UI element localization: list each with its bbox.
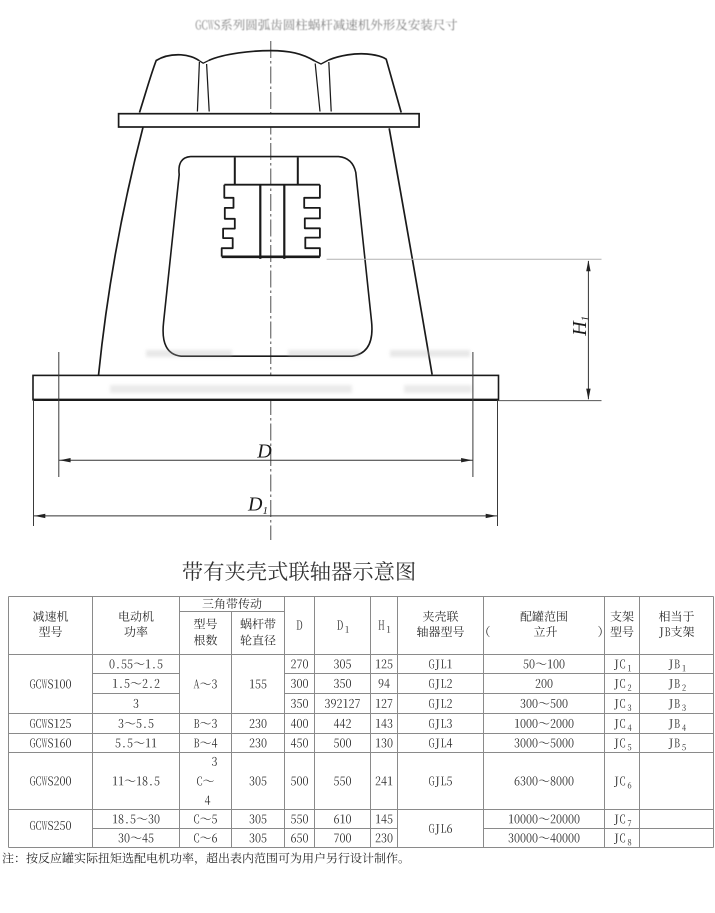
svg-text:D: D: [256, 440, 272, 462]
